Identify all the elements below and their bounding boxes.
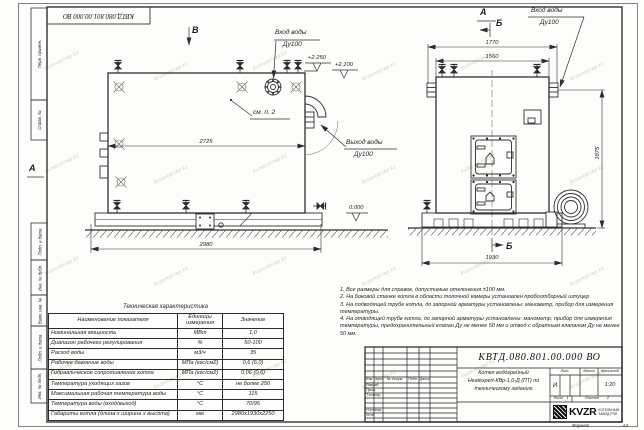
valve-icon xyxy=(284,61,291,74)
logo-subtitle-line: ЗАВОД РЭП xyxy=(598,412,619,416)
cell: Расход воды xyxy=(49,349,178,359)
dim-label: 2980 xyxy=(192,242,220,248)
format-value: А3 xyxy=(623,423,628,428)
fitting-mark-icon xyxy=(237,82,248,93)
outlet-flange-icon xyxy=(305,112,314,128)
view-a-label: А xyxy=(480,8,487,18)
fitting-mark-icon xyxy=(116,177,127,188)
table-row: Номинальная мощностьМВт1,0 xyxy=(49,329,284,339)
cell: Диапазон рабочего регулирования xyxy=(49,339,178,349)
cell: °С xyxy=(178,379,223,389)
format-label: Формат xyxy=(572,423,589,428)
col-data: Дата xyxy=(419,377,430,383)
level-mark-label: +2.100 xyxy=(335,62,353,68)
margin-label: Перв. примен. xyxy=(31,8,47,100)
notes-block: 1. Все размеры для справок, допустимые о… xyxy=(340,287,622,338)
valve-icon xyxy=(114,201,121,214)
scale-value: 1:20 xyxy=(598,375,622,396)
inlet-size-label: Ду100 xyxy=(283,41,302,48)
cell: МПа (кгс/см2) xyxy=(178,369,223,379)
view-b-label: В xyxy=(192,26,199,36)
doc-number: КВТД.080.801.00.000 ВО xyxy=(457,347,622,368)
logo-subtitle: КОТЕЛЬНЫЙ ЗАВОД РЭП xyxy=(598,408,619,416)
doc-number-stamp: КВТД.080.801.00.000 ВО xyxy=(47,7,150,24)
table-row: Рабочее давление водыМПа (кгс/см2)0,6 (6… xyxy=(49,359,284,369)
margin-label: Инв. № подл. xyxy=(31,369,47,403)
drawing-title: Котел водогрейный Heatexpert-КВр-1,0-Д (… xyxy=(458,369,549,401)
scale-header: Масштаб xyxy=(598,368,622,375)
table-row: Максимальная рабочая температура воды°С1… xyxy=(49,390,284,400)
valve-icon xyxy=(237,61,244,74)
sheet-value: 1 xyxy=(566,397,568,401)
cell: Температура воды (вход/выход) xyxy=(49,400,178,410)
dim-label: 1875 xyxy=(595,139,601,167)
cell: % xyxy=(178,339,223,349)
sheets-label: Листов xyxy=(585,397,599,401)
cell: Рабочее давление воды xyxy=(49,359,178,369)
cell: °С xyxy=(178,400,223,410)
section-b-label-top: Б xyxy=(496,19,502,29)
margin-label: Взам. инв. № xyxy=(31,295,47,326)
col-podp: Подп. xyxy=(407,377,419,383)
view-a-label-left: А xyxy=(29,164,36,174)
margin-label: Справ. № xyxy=(31,100,47,140)
valve-icon xyxy=(451,65,458,78)
table-row: Температура воды (вход/выход)°С70/95 xyxy=(49,400,284,410)
cell: Температура уходящих газов xyxy=(49,379,178,389)
cell: 35 xyxy=(223,349,284,359)
sheet-cell: Лист 1 xyxy=(550,396,572,402)
inlet-size-label: Ду100 xyxy=(540,19,559,26)
dim-label: 1770 xyxy=(480,40,504,46)
fan-icon xyxy=(546,190,588,228)
row-tkontr: Т.контр. xyxy=(366,393,383,398)
sight-glass-icon xyxy=(524,110,541,124)
company-logo: KVZR КОТЕЛЬНЫЙ ЗАВОД РЭП xyxy=(551,403,621,421)
cell: МПа (кгс/см2) xyxy=(178,359,223,369)
sheets-value: 2 xyxy=(607,397,609,401)
cell: Гидравлическое сопротивление котла xyxy=(49,369,178,379)
cell: не более 250 xyxy=(223,379,284,389)
col-doc: № докум. xyxy=(383,377,407,383)
logo-word: KVZR xyxy=(569,406,596,418)
fitting-mark-icon xyxy=(114,139,125,150)
cell: 70/95 xyxy=(223,400,284,410)
table-row: Диапазон рабочего регулирования%50-100 xyxy=(49,339,284,349)
dim-label: 2725 xyxy=(192,139,220,145)
format-footer: Формат А3 xyxy=(572,423,628,428)
drain-flange-icon xyxy=(196,214,223,229)
ground-hatch xyxy=(85,231,388,238)
vent-elbow-icon xyxy=(305,96,326,117)
cell: м3/ч xyxy=(178,349,223,359)
cell: 2980х1930х2250 xyxy=(223,410,284,420)
table-row: Габариты котла (длина х ширина х высота)… xyxy=(49,410,284,420)
sheets-cell: Листов 2 xyxy=(572,396,622,402)
valve-icon xyxy=(295,61,302,74)
margin-label: Инв. № дубл. xyxy=(31,260,47,295)
valve-icon xyxy=(183,201,190,214)
side-leaders xyxy=(27,27,397,177)
dim-label: 1560 xyxy=(480,54,504,60)
valve-icon xyxy=(313,203,326,210)
cell: 115 xyxy=(223,390,284,400)
cell: Максимальная рабочая температура воды xyxy=(49,390,178,400)
table-row: Гидравлическое сопротивление котлаМПа (к… xyxy=(49,369,284,379)
side-flange-icon xyxy=(549,83,558,97)
column-header: Наименование показателя xyxy=(49,314,178,329)
lit-value: И xyxy=(550,375,560,396)
valve-icon xyxy=(115,61,122,74)
logo-mark-icon xyxy=(553,405,567,419)
inlet-label: Вход воды xyxy=(275,29,307,36)
inlet-label: Вход воды xyxy=(531,7,563,14)
column-header: Значение xyxy=(223,314,284,329)
column-header: Единицы измерения xyxy=(178,314,223,329)
cell: 50-100 xyxy=(223,339,284,349)
see-note-label: см. п. 2 xyxy=(253,109,275,116)
door-handle-icon xyxy=(486,153,494,164)
valve-icon xyxy=(534,65,541,78)
lit-header: Лит. xyxy=(550,368,580,375)
tech-table-title: Техническая характеристика xyxy=(48,304,283,310)
boiler-front-view xyxy=(408,17,605,266)
table-row: Температура уходящих газов°Сне более 250 xyxy=(49,379,284,389)
margin-label: Подп. и дата xyxy=(31,326,47,369)
row-utv: Утв. xyxy=(366,413,383,418)
drawing-title-line: Heatexpert-КВр-1,0-Д (ПТ) по xyxy=(458,377,549,385)
cell: мм xyxy=(178,410,223,420)
ground-hatch xyxy=(408,229,596,236)
fitting-mark-icon xyxy=(291,82,302,93)
mass-header: Масса xyxy=(580,368,598,375)
outlet-size-label: Ду100 xyxy=(354,151,373,158)
note-item: 2. На боковой стенке котла в области топ… xyxy=(340,294,622,301)
table-header-row: Наименование показателя Единицы измерени… xyxy=(49,314,284,329)
level-mark-label: 0.000 xyxy=(349,205,364,211)
fitting-mark-icon xyxy=(114,82,125,93)
door-handle-icon xyxy=(486,192,494,201)
level-mark-label: +2.250 xyxy=(308,55,326,61)
section-b-label-bottom: Б xyxy=(506,242,512,252)
cell: 1,0 xyxy=(223,329,284,339)
valve-icon xyxy=(424,201,431,214)
drawing-title-line: техническому заданию xyxy=(458,385,549,393)
table-row: Расход водым3/ч35 xyxy=(49,349,284,359)
valve-icon xyxy=(243,201,250,214)
note-item: 3. На подводящей трубе котла, до запорно… xyxy=(340,302,622,317)
cell: Габариты котла (длина х ширина х высота) xyxy=(49,410,178,420)
sheet-label: Лист xyxy=(554,397,564,401)
dim-label: 1930 xyxy=(480,255,504,261)
inlet-flange-icon xyxy=(265,79,281,95)
furnace-door-upper xyxy=(471,136,516,178)
cell: 0,06 (0,6) xyxy=(223,369,284,379)
cell: МВт xyxy=(178,329,223,339)
cell: Номинальная мощность xyxy=(49,329,178,339)
cell: °С xyxy=(178,390,223,400)
note-item: 4. На отводящей трубе котла, до запорной… xyxy=(340,316,622,338)
valve-icon xyxy=(439,65,446,78)
cell: 0,6 (6,0) xyxy=(223,359,284,369)
furnace-door-lower xyxy=(471,180,516,214)
drawing-title-line: Котел водогрейный xyxy=(458,369,549,377)
side-flange-icon xyxy=(427,83,436,97)
margin-label: Подп. и дата xyxy=(31,223,47,260)
drawing-sheet: kvzavod-rep.kzkvzavod-rep.kzkvzavod-rep.… xyxy=(0,0,644,430)
outlet-label: Выход воды xyxy=(346,139,383,146)
tech-table: Наименование показателя Единицы измерени… xyxy=(48,313,284,421)
